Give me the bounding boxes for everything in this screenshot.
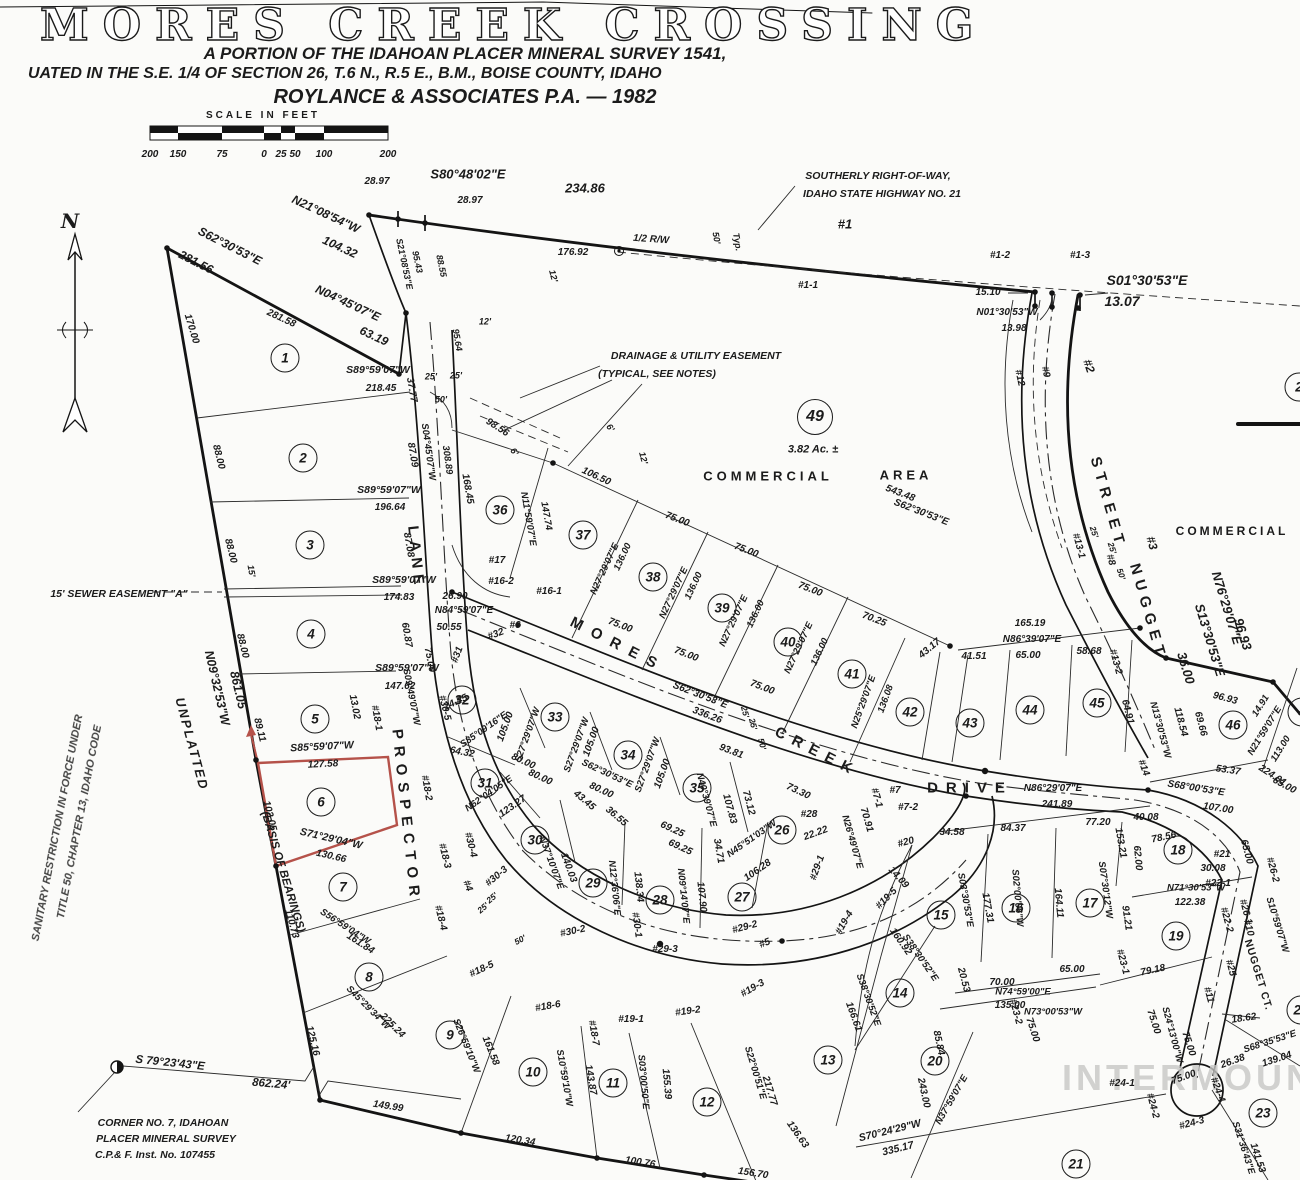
- map-label: 25': [450, 372, 462, 381]
- map-label: 65.00: [1059, 965, 1084, 975]
- map-label: #17: [489, 556, 506, 566]
- lot-circle: 46: [1219, 711, 1248, 740]
- lot-circle: 13: [814, 1046, 843, 1075]
- lot-circle: 32: [448, 686, 477, 715]
- map-label: N84°59'07"E: [435, 606, 493, 616]
- lot-circle: 35: [683, 774, 712, 803]
- map-label: DRAINAGE & UTILITY EASEMENT: [611, 351, 781, 362]
- map-label: 127.58: [307, 759, 338, 771]
- lot-circle: 17: [1076, 889, 1105, 918]
- map-label: 200: [380, 150, 397, 160]
- map-label: 138.34: [631, 871, 644, 902]
- map-label: SOUTHERLY RIGHT-OF-WAY,: [805, 171, 950, 182]
- map-label: #19-1: [618, 1015, 644, 1025]
- map-label: 241.89: [1042, 800, 1073, 810]
- map-label: 3.82 Ac. ±: [788, 445, 838, 456]
- map-label: SCALE IN FEET: [206, 111, 320, 121]
- lot-circle: 20: [921, 1047, 950, 1076]
- map-label: N01°30'53"W: [976, 308, 1037, 318]
- map-label: 218.45: [366, 384, 397, 394]
- map-label: 13.98: [1001, 324, 1026, 334]
- lot-circle: 8: [355, 963, 384, 992]
- lot-lines: [78, 186, 1300, 1180]
- lot-circle: 44: [1016, 696, 1045, 725]
- map-label: #6: [509, 621, 520, 631]
- lot-circle: 12: [693, 1088, 722, 1117]
- lot-circle: 29: [579, 869, 608, 898]
- map-label: 200: [142, 150, 159, 160]
- plat-subtitle-1: A PORTION OF THE IDAHOAN PLACER MINERAL …: [95, 44, 835, 64]
- map-label: 25: [275, 150, 286, 160]
- map-label: 40.08: [1133, 813, 1158, 823]
- lot-circle: 49: [797, 399, 833, 435]
- lot-circle: 16: [1002, 894, 1031, 923]
- map-label: N71°30'53"W: [1167, 883, 1225, 893]
- lot-circle: 30: [521, 826, 550, 855]
- map-label: 34.58: [939, 828, 964, 838]
- lot-circle: 10: [519, 1058, 548, 1087]
- plat-sheet: INTERMOUNTAIN MORES CREEK CROSSING A POR…: [0, 0, 1300, 1180]
- map-label: N74°59'00"E: [995, 987, 1050, 997]
- lot-circle: 19: [1162, 922, 1191, 951]
- map-label: COMMERCIAL: [1176, 525, 1289, 537]
- map-label: 100: [316, 150, 333, 160]
- map-label: 12': [547, 269, 559, 283]
- map-label: #29-3: [652, 945, 678, 955]
- map-label: 28.97: [364, 177, 389, 187]
- lot-circle: 11: [599, 1069, 628, 1098]
- map-label: 15': [246, 564, 257, 578]
- map-label: 65.00: [1015, 651, 1040, 661]
- map-label: COMMERCIAL: [703, 470, 833, 483]
- lot-circle: 14: [886, 979, 915, 1008]
- map-label: #1-3: [1070, 251, 1090, 261]
- map-label: S89°59'07"W: [357, 485, 421, 496]
- map-label: N: [61, 211, 79, 231]
- map-label: 62.00: [1131, 845, 1143, 871]
- lot-circle: 23: [1249, 1099, 1278, 1128]
- lot-circle: 37: [569, 521, 598, 550]
- map-label: #7-2: [898, 803, 918, 813]
- map-label: S89°59'07"W: [375, 663, 439, 674]
- lot-circle: 42: [896, 698, 925, 727]
- map-label: 91.21: [1119, 905, 1132, 931]
- map-label: #30-1: [629, 912, 642, 939]
- map-label: S89°59'07"W: [372, 575, 436, 586]
- map-label: 155.39: [660, 1068, 673, 1099]
- map-label: 13.07: [1104, 294, 1139, 308]
- plat-subtitle-2: UATED IN THE S.E. 1/4 OF SECTION 26, T.6…: [28, 65, 662, 83]
- map-label: #7: [889, 786, 900, 796]
- scale-bar: [150, 126, 388, 140]
- map-label: C.P.& F. Inst. No. 107455: [95, 1150, 215, 1161]
- map-label: #24-1: [1109, 1079, 1135, 1089]
- map-label: Typ.: [731, 232, 743, 251]
- map-label: #16-1: [536, 587, 562, 597]
- map-label: 75: [216, 150, 227, 160]
- map-label: 25': [425, 373, 437, 382]
- plat-subtitle-3: ROYLANCE & ASSOCIATES P.A. — 1982: [95, 86, 835, 109]
- lot-circle: 40: [774, 628, 803, 657]
- map-label: 26.90: [442, 592, 467, 602]
- map-label: 58.68: [1076, 647, 1101, 657]
- map-label: 15' SEWER EASEMENT "A": [50, 589, 187, 600]
- lot-circle: 18: [1164, 836, 1193, 865]
- lot-circle: 39: [708, 594, 737, 623]
- map-label: 50': [435, 396, 447, 405]
- map-label: #1-1: [798, 281, 818, 291]
- lot-circle: 41: [838, 660, 867, 689]
- map-label: 50': [756, 737, 767, 750]
- map-label: 50.55: [436, 623, 461, 633]
- map-label: 234.86: [565, 182, 605, 195]
- map-label: S89°59'07"W: [346, 365, 410, 376]
- lot-circle: 7: [329, 873, 358, 902]
- lot-circle: 36: [486, 496, 515, 525]
- map-label: 84.37: [1000, 824, 1025, 834]
- map-label: #1: [838, 218, 852, 231]
- map-label: 122.38: [1175, 898, 1206, 908]
- lot-circle: 9: [436, 1021, 465, 1050]
- map-label: AREA: [880, 469, 933, 482]
- lot-circle: 26: [768, 816, 797, 845]
- map-label: 30.08: [1200, 864, 1225, 874]
- map-label: 77.20: [1085, 818, 1110, 828]
- lot-circle: 21: [1062, 1150, 1091, 1179]
- lot-circle: 27: [728, 883, 757, 912]
- map-label: 12': [479, 318, 491, 327]
- map-label: PLACER MINERAL SURVEY: [96, 1134, 236, 1145]
- map-label: 107.90: [694, 881, 707, 912]
- lot-circle: 1: [271, 344, 300, 373]
- lot-circle: 43: [956, 709, 985, 738]
- map-label: 196.64: [375, 503, 406, 513]
- map-label: #28: [801, 810, 818, 820]
- map-label: 176.92: [558, 248, 589, 258]
- lot-circle: 28: [646, 886, 675, 915]
- map-label: 50: [289, 150, 300, 160]
- map-label: 150: [170, 150, 187, 160]
- map-label: #1-2: [990, 251, 1010, 261]
- map-label: 41.51: [961, 652, 986, 662]
- lot-circle: 3: [296, 531, 325, 560]
- map-label: #21: [1214, 850, 1231, 860]
- map-label: IDAHO STATE HIGHWAY NO. 21: [803, 189, 961, 200]
- lot-circle: 4: [297, 620, 326, 649]
- map-label: 147.62: [385, 682, 416, 692]
- map-label: 25': [739, 705, 750, 718]
- lot-circle: 5: [301, 705, 330, 734]
- lot-circle: 34: [614, 741, 643, 770]
- map-label: S01°30'53"E: [1107, 273, 1188, 287]
- map-label: (TYPICAL, SEE NOTES): [598, 369, 716, 380]
- lot-circle: 31: [471, 769, 500, 798]
- lot-circle: 6: [307, 788, 336, 817]
- map-label: N86°29'07"E: [1024, 784, 1082, 794]
- map-label: 174.83: [384, 593, 415, 603]
- lot-circle: 45: [1083, 689, 1112, 718]
- map-label: CORNER NO. 7, IDAHOAN: [98, 1118, 229, 1129]
- map-label: #9: [1039, 366, 1051, 379]
- north-arrow: [57, 234, 93, 432]
- map-label: 165.19: [1015, 619, 1046, 629]
- lot-circle: 38: [639, 563, 668, 592]
- map-label: 50': [711, 231, 722, 245]
- map-label: 28.97: [457, 196, 482, 206]
- map-label: 0: [261, 150, 267, 160]
- lot-circle: 2: [289, 444, 318, 473]
- map-label: #12: [1012, 369, 1025, 387]
- map-label: 25': [747, 717, 758, 730]
- map-label: S80°48'02"E: [430, 168, 505, 181]
- map-label: 12': [637, 451, 649, 465]
- map-label: 164.11: [1052, 888, 1065, 919]
- map-label: 15.10: [975, 288, 1000, 298]
- lot-circle: 33: [541, 703, 570, 732]
- map-label: DRIVE: [927, 781, 1013, 796]
- map-label: #16-2: [488, 577, 514, 587]
- lot-circle: 15: [927, 901, 956, 930]
- map-label: N86°39'07"E: [1003, 635, 1061, 645]
